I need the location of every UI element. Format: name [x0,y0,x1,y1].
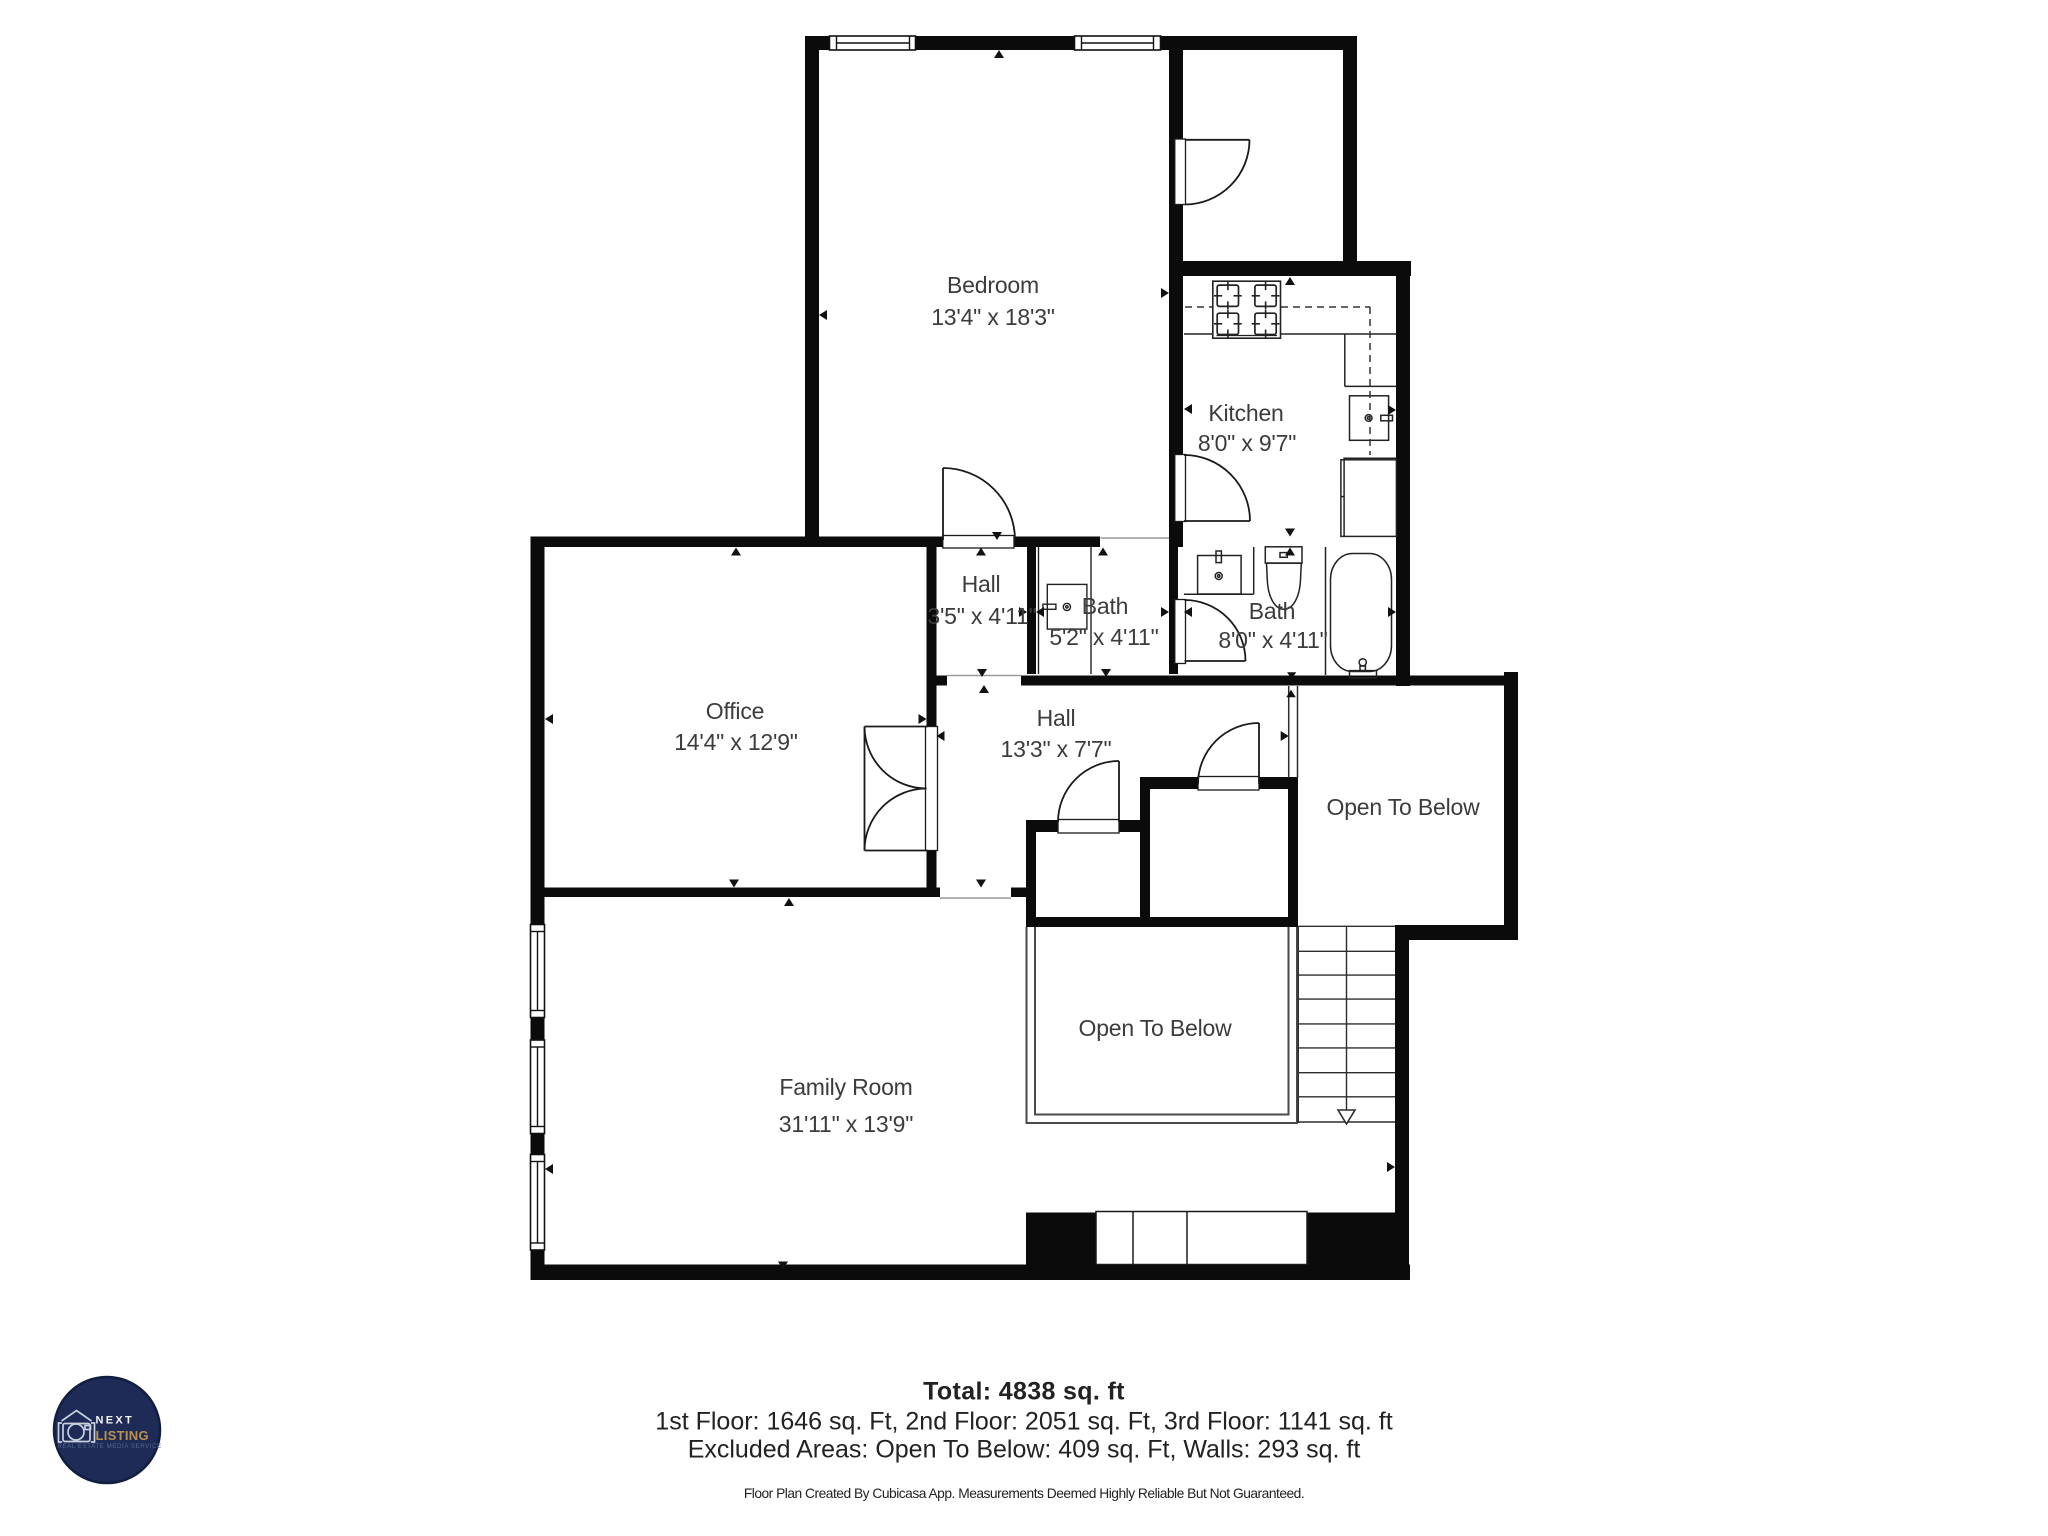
svg-text:Total: 4838 sq. ft: Total: 4838 sq. ft [923,1378,1125,1406]
svg-text:Bath: Bath [1249,598,1296,624]
svg-text:REAL ESTATE MEDIA SERVICE: REAL ESTATE MEDIA SERVICE [58,1443,162,1450]
svg-text:8'0" x 9'7": 8'0" x 9'7" [1198,430,1296,456]
svg-text:NEXT: NEXT [96,1415,135,1427]
svg-text:8'0" x 4'11": 8'0" x 4'11" [1218,627,1327,653]
svg-text:13'3" x 7'7": 13'3" x 7'7" [1001,736,1112,762]
svg-text:Excluded Areas: Open To Below:: Excluded Areas: Open To Below: 409 sq. F… [688,1436,1361,1464]
svg-text:Kitchen: Kitchen [1208,400,1283,426]
svg-text:Open To Below: Open To Below [1327,794,1481,820]
svg-text:Bedroom: Bedroom [947,272,1039,298]
svg-text:Hall: Hall [1037,705,1076,731]
svg-text:Bath: Bath [1082,593,1129,619]
svg-text:1st Floor: 1646 sq. Ft, 2nd Fl: 1st Floor: 1646 sq. Ft, 2nd Floor: 2051 … [655,1408,1392,1436]
svg-text:13'4" x 18'3": 13'4" x 18'3" [931,304,1055,330]
svg-text:14'4" x 12'9": 14'4" x 12'9" [674,729,798,755]
svg-text:Office: Office [706,698,764,724]
svg-text:Floor Plan Created By Cubicasa: Floor Plan Created By Cubicasa App. Meas… [744,1486,1304,1501]
svg-text:LISTING: LISTING [96,1428,149,1443]
svg-text:5'2" x 4'11": 5'2" x 4'11" [1049,624,1158,650]
svg-text:Hall: Hall [962,571,1001,597]
svg-text:3'5" x 4'11": 3'5" x 4'11" [927,603,1036,629]
svg-text:Family Room: Family Room [779,1074,912,1100]
svg-text:31'11" x 13'9": 31'11" x 13'9" [779,1111,913,1137]
svg-text:Open To Below: Open To Below [1079,1015,1233,1041]
